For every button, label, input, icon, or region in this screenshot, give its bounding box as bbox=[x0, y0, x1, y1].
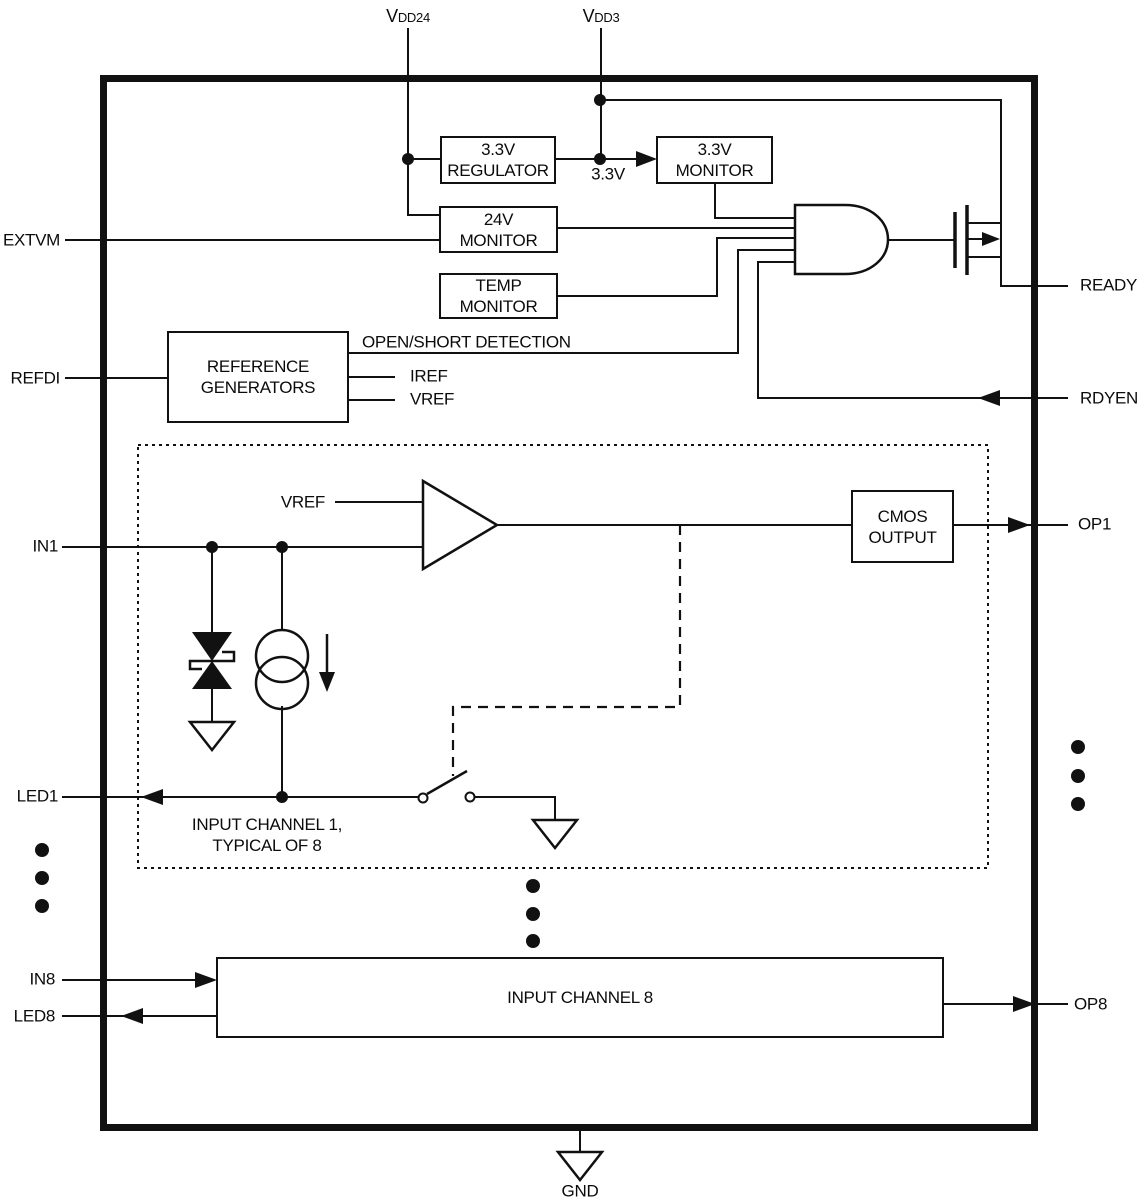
switch-contact-right bbox=[466, 793, 475, 802]
pin-label-led8: LED8 bbox=[14, 1008, 55, 1025]
junction-dot bbox=[594, 94, 606, 106]
wire-temp-to-and bbox=[557, 238, 795, 296]
vdd3-sub: DD3 bbox=[594, 10, 619, 25]
mosfet-body-arrow-icon bbox=[982, 232, 1000, 246]
pin-label-gnd: GND bbox=[562, 1183, 599, 1200]
pin-label-in8: IN8 bbox=[29, 971, 55, 988]
pin-label-op8: OP8 bbox=[1074, 996, 1107, 1013]
monitor-24-line2: MONITOR bbox=[460, 230, 538, 251]
junction-dot bbox=[276, 791, 288, 803]
ellipsis-center-dot bbox=[526, 907, 540, 921]
current-arrow-head bbox=[319, 672, 335, 692]
ellipsis-left-dot bbox=[35, 871, 49, 885]
channel-note-line1: INPUT CHANNEL 1, bbox=[192, 814, 342, 835]
input-channel-8-line1: INPUT CHANNEL 8 bbox=[507, 987, 653, 1008]
ellipsis-right-dot bbox=[1071, 740, 1085, 754]
arrow-op1-icon bbox=[1008, 517, 1030, 533]
ellipsis-center-dot bbox=[526, 879, 540, 893]
junction-dot bbox=[206, 541, 218, 553]
monitor-temp-line2: MONITOR bbox=[460, 296, 538, 317]
tvs-upper-triangle bbox=[192, 632, 232, 661]
junction-dot bbox=[402, 153, 414, 165]
signal-label-rail-33: 3.3V bbox=[591, 166, 625, 183]
reference-generators-line1: REFERENCE bbox=[207, 356, 309, 377]
block-diagram: VDD24 VDD3 EXTVM REFDI IN1 LED1 IN8 LED8… bbox=[0, 0, 1138, 1200]
signal-label-iref: IREF bbox=[410, 368, 448, 385]
regulator-33-line2: REGULATOR bbox=[447, 160, 549, 181]
channel-note-line2: TYPICAL OF 8 bbox=[192, 835, 342, 856]
pin-label-in1: IN1 bbox=[32, 538, 58, 555]
dashed-control-line bbox=[453, 525, 680, 776]
block-label-monitor-24: 24V MONITOR bbox=[440, 207, 557, 252]
wire-rdyen-to-and bbox=[758, 262, 1068, 398]
arrow-rdyen-icon bbox=[978, 390, 1000, 406]
wire-monitor33-to-and bbox=[715, 183, 795, 218]
wire-vdd24 bbox=[408, 28, 440, 215]
pin-label-refdi: REFDI bbox=[10, 370, 60, 387]
arrow-led1-icon bbox=[141, 789, 163, 805]
cmos-output-line1: CMOS bbox=[878, 506, 928, 527]
reference-generators-line2: GENERATORS bbox=[201, 377, 315, 398]
ground-symbols bbox=[190, 722, 602, 1180]
vdd24-sub: DD24 bbox=[398, 10, 430, 25]
signal-label-open-short-detection: OPEN/SHORT DETECTION bbox=[362, 334, 571, 351]
wire-switch-to-ground bbox=[475, 797, 555, 820]
switch-contact-left bbox=[419, 794, 428, 803]
cmos-output-line2: OUTPUT bbox=[868, 527, 936, 548]
ground-icon-gnd-pin bbox=[558, 1152, 602, 1180]
ellipsis-left-dot bbox=[35, 899, 49, 913]
block-label-cmos-output: CMOS OUTPUT bbox=[852, 491, 953, 562]
pin-label-op1: OP1 bbox=[1078, 516, 1111, 533]
pin-label-extvm: EXTVM bbox=[3, 232, 60, 249]
current-source-icon bbox=[256, 630, 335, 709]
ground-icon-switch bbox=[533, 820, 577, 848]
monitor-temp-line1: TEMP bbox=[475, 275, 521, 296]
arrow-in8-icon bbox=[195, 972, 217, 988]
channel-note: INPUT CHANNEL 1, TYPICAL OF 8 bbox=[192, 814, 342, 856]
monitor-24-line1: 24V bbox=[484, 209, 513, 230]
block-label-monitor-33: 3.3V MONITOR bbox=[657, 137, 772, 183]
ellipsis-right-dot bbox=[1071, 769, 1085, 783]
arrow-into-monitor33-icon bbox=[636, 151, 657, 167]
ellipsis-center-dot bbox=[526, 934, 540, 948]
signal-label-vref-comparator: VREF bbox=[281, 494, 325, 511]
block-label-reference-generators: REFERENCE GENERATORS bbox=[168, 332, 348, 422]
arrowheads bbox=[121, 151, 1035, 1024]
pin-label-vdd24: VDD24 bbox=[386, 7, 430, 25]
pin-label-rdyen: RDYEN bbox=[1080, 390, 1138, 407]
and-gate-icon bbox=[795, 205, 888, 274]
pin-label-led1: LED1 bbox=[17, 788, 58, 805]
vdd24-main: V bbox=[386, 6, 398, 26]
block-label-monitor-temp: TEMP MONITOR bbox=[440, 274, 557, 318]
junction-dot bbox=[276, 541, 288, 553]
switch-icon bbox=[419, 771, 475, 803]
vdd3-main: V bbox=[583, 6, 595, 26]
tvs-lower-triangle bbox=[192, 661, 232, 689]
block-label-input-channel-8: INPUT CHANNEL 8 bbox=[217, 958, 943, 1037]
regulator-33-line1: 3.3V bbox=[481, 139, 515, 160]
signal-label-vref: VREF bbox=[410, 391, 454, 408]
junction-dots bbox=[206, 94, 606, 803]
monitor-33-line2: MONITOR bbox=[676, 160, 754, 181]
tvs-diode-icon bbox=[190, 632, 234, 689]
comparator-icon bbox=[423, 481, 497, 569]
pin-label-ready: READY bbox=[1080, 277, 1137, 294]
monitor-33-line1: 3.3V bbox=[698, 139, 732, 160]
pin-label-vdd3: VDD3 bbox=[583, 7, 620, 25]
ellipsis-left-dot bbox=[35, 843, 49, 857]
block-label-regulator-33: 3.3V REGULATOR bbox=[441, 137, 555, 183]
ellipsis-right-dot bbox=[1071, 797, 1085, 811]
ground-icon-zener bbox=[190, 722, 234, 750]
switch-lever bbox=[427, 771, 467, 794]
arrow-led8-icon bbox=[121, 1008, 143, 1024]
junction-dot bbox=[594, 153, 606, 165]
